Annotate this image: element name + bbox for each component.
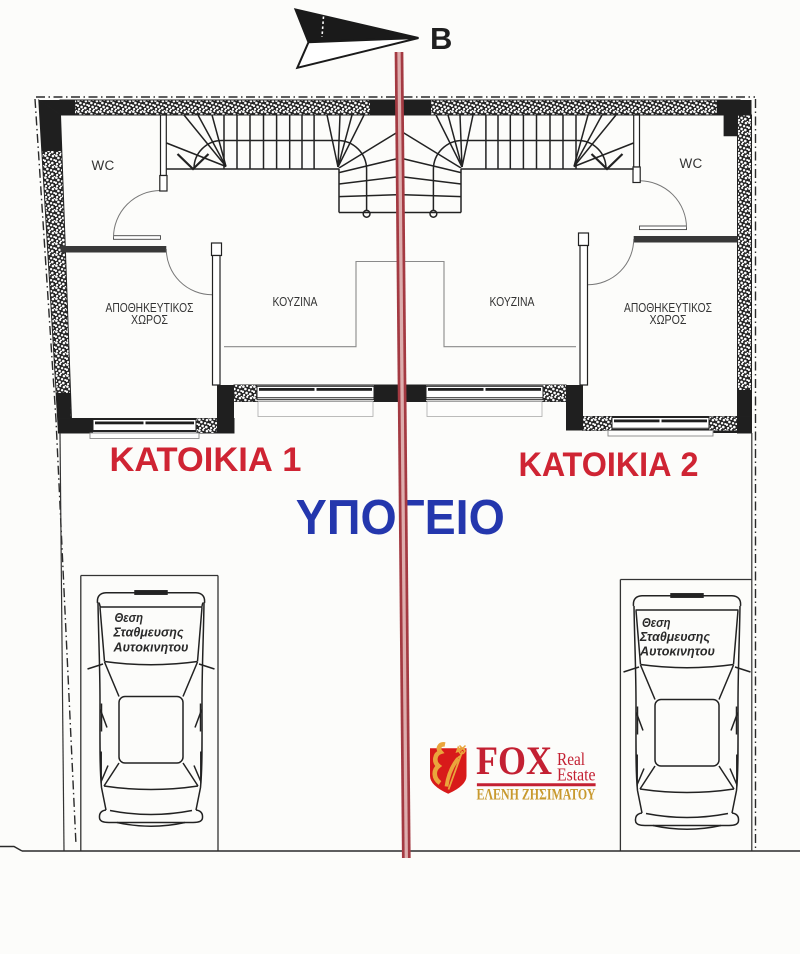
svg-text:WC: WC: [92, 158, 115, 173]
svg-text:WC: WC: [680, 156, 703, 171]
svg-text:FOX: FOX: [476, 738, 552, 783]
svg-text:Θεση: Θεση: [642, 616, 671, 630]
svg-text:Σταθμευσης: Σταθμευσης: [113, 626, 184, 640]
svg-text:ΚΟΥΖΙΝΑ: ΚΟΥΖΙΝΑ: [273, 294, 318, 309]
svg-text:ΚΟΥΖΙΝΑ: ΚΟΥΖΙΝΑ: [490, 294, 535, 309]
svg-text:Αυτοκινητου: Αυτοκινητου: [639, 645, 715, 659]
svg-text:ΕΛΕΝΗ ΖΗΣΙΜΑΤΟΥ: ΕΛΕΝΗ ΖΗΣΙΜΑΤΟΥ: [477, 787, 596, 804]
svg-text:ΧΩΡΟΣ: ΧΩΡΟΣ: [650, 313, 687, 327]
svg-text:B: B: [430, 21, 452, 56]
svg-text:Σταθμευσης: Σταθμευσης: [639, 630, 710, 644]
svg-text:Estate: Estate: [557, 765, 596, 785]
svg-text:ΚΑΤΟΙΚΙΑ 2: ΚΑΤΟΙΚΙΑ 2: [519, 446, 699, 484]
svg-text:Θεση: Θεση: [115, 611, 144, 625]
svg-text:Αυτοκινητου: Αυτοκινητου: [112, 641, 188, 655]
svg-text:ΚΑΤΟΙΚΙΑ 1: ΚΑΤΟΙΚΙΑ 1: [110, 441, 302, 479]
svg-text:ΧΩΡΟΣ: ΧΩΡΟΣ: [131, 313, 168, 327]
